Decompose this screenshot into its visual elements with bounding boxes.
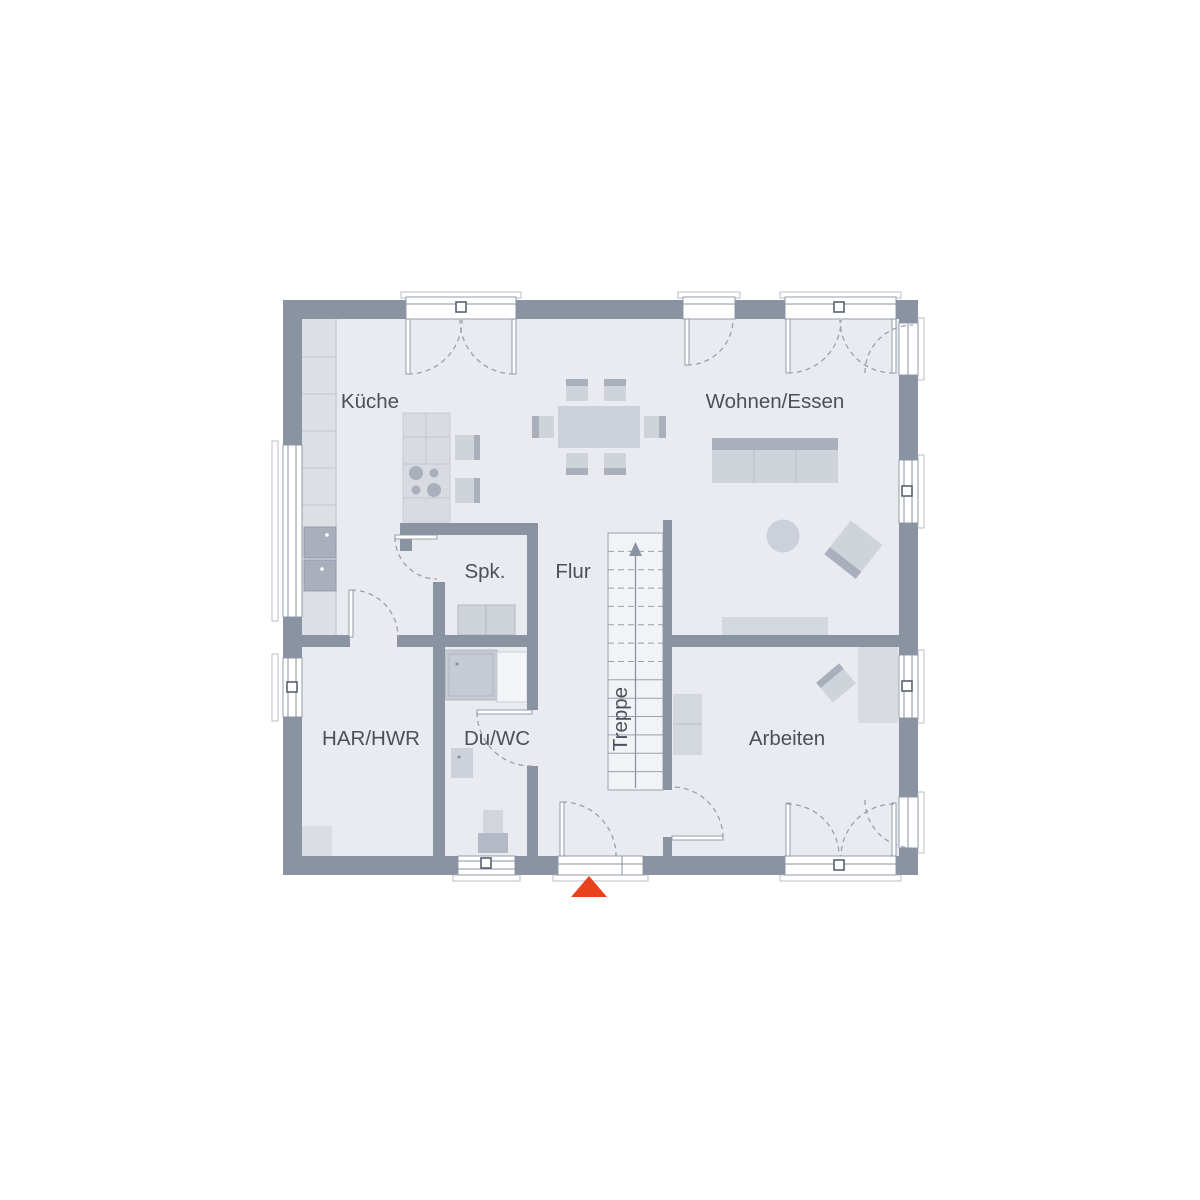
room-label-treppe: Treppe (609, 687, 632, 751)
door-leaf-bath (477, 710, 532, 714)
utility-item (300, 826, 332, 856)
wall-stairs-right (663, 520, 672, 790)
window-utility-west (272, 654, 302, 721)
shower (445, 650, 497, 700)
window-office-east (899, 650, 924, 723)
wall-living-office (672, 635, 899, 647)
room-label-kueche: Küche (341, 390, 399, 413)
kitchen-appliance-sink (304, 527, 336, 558)
toilet (483, 810, 503, 834)
wall-pantry-top (400, 523, 538, 535)
wall-hall-left (527, 523, 538, 710)
desk (858, 647, 898, 723)
door-leaf-office (672, 836, 723, 840)
wall-utility-bath (433, 647, 445, 856)
room-label-har-hwr: HAR/HWR (322, 727, 420, 750)
wall-utility-top (302, 635, 350, 647)
window-kitchen-west (272, 441, 302, 621)
pantry-furniture (458, 605, 515, 635)
bath-cabinet (497, 652, 527, 702)
dining-table (558, 406, 640, 448)
washbasin (451, 748, 473, 778)
kitchen-appliance-oven (304, 560, 336, 591)
room-label-flur: Flur (555, 560, 590, 583)
room-label-arbeiten: Arbeiten (749, 727, 825, 750)
door-leaf-pantry (395, 535, 437, 539)
room-label-du-wc: Du/WC (464, 727, 530, 750)
room-label-wohnen-essen: Wohnen/Essen (706, 390, 845, 413)
wall-pantry-left (433, 582, 445, 635)
window-living-east (899, 455, 924, 528)
living-sideboard (722, 617, 828, 635)
coffee-table (767, 520, 800, 553)
window-bath-south (453, 856, 520, 881)
wall-east (899, 300, 918, 875)
floor-plan-drawing: Küche Wohnen/Essen Spk. Flur Treppe HAR/… (0, 0, 1200, 1200)
room-label-spk: Spk. (464, 560, 505, 583)
floor-plan-page: Küche Wohnen/Essen Spk. Flur Treppe HAR/… (0, 0, 1200, 1200)
door-leaf-utility (349, 590, 353, 637)
